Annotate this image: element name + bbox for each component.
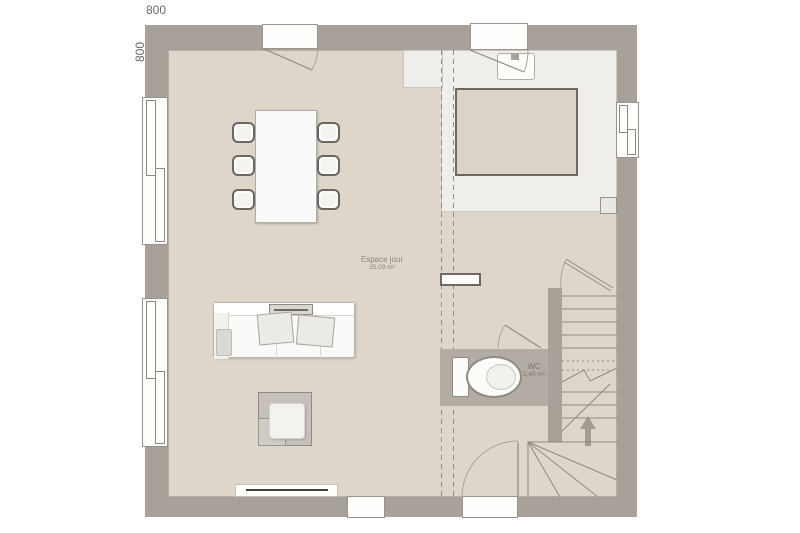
chair-icon xyxy=(317,189,340,210)
chair-icon xyxy=(232,189,255,210)
bottom-window xyxy=(347,496,385,518)
entry-door-opening xyxy=(470,23,528,50)
dining-table-icon xyxy=(255,110,317,223)
stairs-up-arrow-head-icon xyxy=(580,416,596,429)
left-window-lower xyxy=(142,298,168,447)
living-room-name: Espace jour xyxy=(327,255,437,264)
top-window-opening xyxy=(262,24,318,49)
chair-icon xyxy=(232,122,255,143)
kitchen-counter-left xyxy=(403,50,443,88)
cushion-icon xyxy=(257,312,295,346)
kitchen-island xyxy=(455,88,578,176)
chair-icon xyxy=(317,155,340,176)
left-window-upper xyxy=(142,97,168,245)
staircase-wall xyxy=(548,288,562,442)
side-table-top-icon xyxy=(269,403,305,439)
chair-icon xyxy=(232,155,255,176)
faucet-icon xyxy=(511,53,519,60)
living-room-label: Espace jour 35,09 m² xyxy=(327,255,437,272)
radiator-icon xyxy=(235,484,338,497)
kitchen-appliance-icon xyxy=(600,197,617,214)
sofa-icon xyxy=(213,302,355,358)
living-room-area: 35,09 m² xyxy=(327,264,437,272)
stairs-up-arrow-icon xyxy=(585,428,591,446)
blanket-icon xyxy=(216,329,232,356)
right-window xyxy=(616,102,639,158)
radiator-icon xyxy=(440,273,481,286)
dimension-width-label: 800 xyxy=(146,3,166,17)
bottom-door-opening xyxy=(462,496,518,518)
chair-icon xyxy=(317,122,340,143)
floor-plan: 800 800 WC 1,40 m² xyxy=(0,0,800,533)
cushion-icon xyxy=(296,314,335,347)
